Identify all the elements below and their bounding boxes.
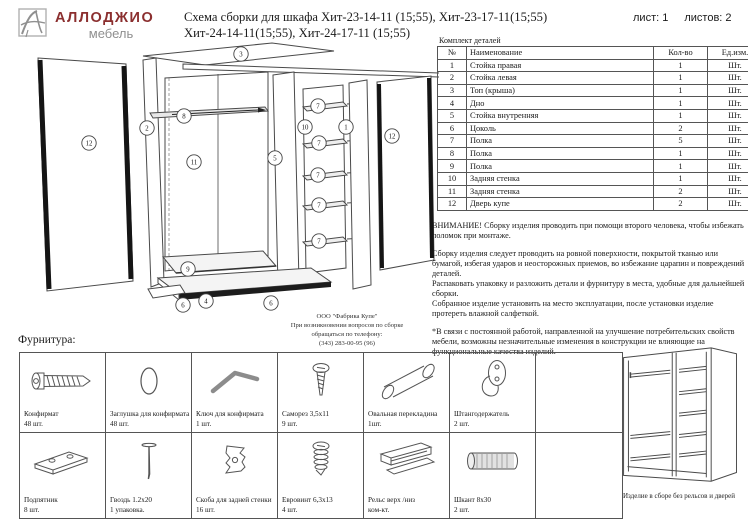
svg-text:7: 7	[317, 140, 321, 147]
euro-screw-icon	[278, 436, 363, 486]
svg-text:6: 6	[269, 300, 273, 307]
door-right	[377, 76, 434, 270]
part-callout: 8	[177, 109, 191, 123]
contact-line: При возникновении вопросов по сборке	[282, 322, 412, 331]
note-block: Сборку изделия следует проводить на ровн…	[432, 249, 746, 319]
table-cell: 1	[654, 160, 708, 173]
svg-text:8: 8	[182, 113, 186, 120]
svg-text:5: 5	[273, 155, 277, 162]
contact-line: обращаться по телефону:	[282, 331, 412, 340]
table-row: 8Полка1Шт.	[438, 147, 748, 160]
part-callout: 3	[234, 47, 248, 61]
part-callout: 2	[140, 121, 154, 135]
parts-table-caption: Комплект деталей	[439, 36, 745, 45]
table-cell: 1	[654, 72, 708, 85]
left-post	[143, 58, 164, 287]
contact-line: (343) 283-00-95 (96)	[282, 340, 412, 349]
table-row: 1Стойка правая1Шт.	[438, 59, 748, 72]
brand-sub: мебель	[55, 26, 167, 41]
rail-icon	[364, 436, 449, 486]
table-cell: 4	[438, 97, 467, 110]
note-paragraph: Сборку изделия следует проводить на ровн…	[432, 249, 746, 279]
hex-key-icon	[192, 356, 277, 406]
table-cell: Задняя стенка	[467, 185, 654, 198]
table-cell: Стойка левая	[467, 72, 654, 85]
note-paragraph: Распаковать упаковку и разложить детали …	[432, 279, 746, 299]
svg-text:3: 3	[239, 51, 243, 58]
note-block: ВНИМАНИЕ! Сборку изделия проводить при п…	[432, 221, 746, 241]
assembled-unit-caption: Изделие в сборе без рельсов и дверей	[610, 492, 748, 500]
table-cell: 12	[438, 198, 467, 211]
hardware-cell: Скоба для задней стенки16 шт.	[192, 433, 278, 519]
table-cell: 2	[654, 185, 708, 198]
hardware-name: Ключ для конфирмата	[196, 410, 276, 419]
hardware-cell: Овальная перекладина1шт.	[364, 353, 450, 433]
dowel-icon	[450, 436, 535, 486]
svg-text:6: 6	[181, 302, 185, 309]
table-cell: Шт.	[708, 198, 748, 211]
hardware-qty: 16 шт.	[196, 506, 276, 515]
table-cell: Задняя стенка	[467, 172, 654, 185]
hardware-empty-cell	[536, 433, 623, 519]
hardware-qty: 9 шт.	[282, 420, 362, 429]
table-cell: 1	[654, 109, 708, 122]
hardware-cell: Ключ для конфирмата1 шт.	[192, 353, 278, 433]
table-cell: 5	[438, 109, 467, 122]
manufacturer-contact: ООО "Фабрика Купе"При возникновении вопр…	[282, 313, 412, 349]
table-cell: 1	[654, 84, 708, 97]
hardware-name: Скоба для задней стенки	[196, 496, 276, 505]
hardware-table: Конфирмат48 шт. Заглушка для конфирмата4…	[19, 352, 623, 519]
table-cell: 10	[438, 172, 467, 185]
table-cell: 1	[654, 59, 708, 72]
rod-holder-icon	[450, 356, 535, 406]
hardware-section-label: Фурнитура:	[18, 334, 76, 346]
hardware-qty: 2 шт.	[454, 420, 534, 429]
hardware-qty: 8 шт.	[24, 506, 104, 515]
hardware-name: Рельс верх /низ	[368, 496, 448, 505]
svg-text:4: 4	[204, 298, 208, 305]
table-cell: 2	[654, 198, 708, 211]
svg-text:11: 11	[191, 159, 198, 166]
assembly-sheet: АЛЛОДЖИО мебель Схема сборки для шкафа Х…	[0, 0, 748, 527]
confirmat-icon	[20, 356, 105, 406]
table-cell: Шт.	[708, 185, 748, 198]
svg-text:7: 7	[316, 103, 320, 110]
brand: АЛЛОДЖИО мебель	[55, 10, 167, 41]
table-row: 4Дно1Шт.	[438, 97, 748, 110]
svg-text:10: 10	[302, 124, 309, 131]
table-cell: Шт.	[708, 72, 748, 85]
table-cell: Шт.	[708, 59, 748, 72]
hardware-cell: Гвоздь 1.2х201 упаковка.	[106, 433, 192, 519]
table-cell: Шт.	[708, 122, 748, 135]
table-cell: 6	[438, 122, 467, 135]
part-callout: 6	[264, 296, 278, 310]
table-cell: 1	[654, 172, 708, 185]
part-callout: 11	[187, 155, 201, 169]
part-callout: 9	[181, 262, 195, 276]
table-cell: 2	[438, 72, 467, 85]
svg-text:1: 1	[344, 124, 347, 131]
hardware-name: Гвоздь 1.2х20	[110, 496, 190, 505]
exploded-diagram: 3821211510777771129466	[22, 42, 439, 345]
col-qty: Кол-во	[654, 47, 708, 60]
table-cell: 9	[438, 160, 467, 173]
part-callout: 1	[339, 120, 353, 134]
svg-text:7: 7	[316, 172, 320, 179]
brand-name: АЛЛОДЖИО	[55, 10, 167, 26]
door-left	[38, 58, 133, 291]
table-cell: Полка	[467, 160, 654, 173]
hardware-qty: 2 шт.	[454, 506, 534, 515]
back-panel-large	[165, 72, 268, 271]
logo-mark-icon	[18, 8, 48, 38]
assembled-unit-drawing	[616, 344, 746, 490]
table-cell: Дно	[467, 97, 654, 110]
table-cell: 1	[438, 59, 467, 72]
part-callout: 7	[311, 168, 325, 182]
part-callout: 12	[82, 136, 96, 150]
hardware-name: Штангодержатель	[454, 410, 534, 419]
note-paragraph: ВНИМАНИЕ! Сборку изделия проводить при п…	[432, 221, 746, 241]
table-cell: Полка	[467, 135, 654, 148]
right-post	[349, 80, 371, 289]
table-cell: Шт.	[708, 109, 748, 122]
hardware-qty: 1шт.	[368, 420, 448, 429]
table-cell: Шт.	[708, 147, 748, 160]
hardware-name: Подпятник	[24, 496, 104, 505]
table-row: 11Задняя стенка2Шт.	[438, 185, 748, 198]
part-callout: 7	[311, 99, 325, 113]
hardware-qty: 48 шт.	[110, 420, 190, 429]
table-row: 6Цоколь2Шт.	[438, 122, 748, 135]
table-cell: 3	[438, 84, 467, 97]
hardware-qty: 48 шт.	[24, 420, 104, 429]
table-cell: 1	[654, 97, 708, 110]
sheet-number: лист: 1	[633, 12, 668, 24]
parts-table: № Наименование Кол-во Ед.изм. 1Стойка пр…	[437, 46, 748, 211]
sheet-info: лист: 1листов: 2	[633, 12, 748, 24]
hardware-qty: 4 шт.	[282, 506, 362, 515]
hardware-qty: 1 упаковка.	[110, 506, 190, 515]
hardware-name: Евровинт 6,3х13	[282, 496, 362, 505]
svg-text:12: 12	[86, 140, 93, 147]
parts-list: Комплект деталей № Наименование Кол-во Е…	[437, 36, 745, 211]
part-callout: 6	[176, 298, 190, 312]
table-cell: Топ (крыша)	[467, 84, 654, 97]
contact-line: ООО "Фабрика Купе"	[282, 313, 412, 322]
table-cell: Шт.	[708, 172, 748, 185]
table-cell: 11	[438, 185, 467, 198]
table-cell: 7	[438, 135, 467, 148]
table-cell: Стойка внутренняя	[467, 109, 654, 122]
table-cell: Полка	[467, 147, 654, 160]
part-callout: 7	[312, 234, 326, 248]
table-cell: Стойка правая	[467, 59, 654, 72]
table-cell: Шт.	[708, 135, 748, 148]
table-cell: 1	[654, 147, 708, 160]
table-row: 10Задняя стенка1Шт.	[438, 172, 748, 185]
hardware-cell: Заглушка для конфирмата48 шт.	[106, 353, 192, 433]
table-cell: 8	[438, 147, 467, 160]
table-cell: 5	[654, 135, 708, 148]
hardware-qty: 1 шт.	[196, 420, 276, 429]
oval-rod-icon	[364, 356, 449, 406]
table-row: 2Стойка левая1Шт.	[438, 72, 748, 85]
inner-post	[273, 72, 299, 286]
cap-icon	[106, 356, 191, 406]
part-callout: 7	[312, 198, 326, 212]
svg-text:12: 12	[389, 133, 396, 140]
svg-text:9: 9	[186, 266, 190, 273]
bracket-icon	[192, 436, 277, 486]
hardware-empty-cell	[536, 353, 623, 433]
title-line-1: Схема сборки для шкафа Хит-23-14-11 (15;…	[184, 9, 584, 25]
screw-icon	[278, 356, 363, 406]
table-cell: Шт.	[708, 97, 748, 110]
table-cell: Шт.	[708, 84, 748, 97]
part-callout: 4	[199, 294, 213, 308]
table-row: 12Дверь купе2Шт.	[438, 198, 748, 211]
col-unit: Ед.изм.	[708, 47, 748, 60]
foot-pad-icon	[20, 436, 105, 486]
col-name: Наименование	[467, 47, 654, 60]
parts-table-header: № Наименование Кол-во Ед.изм.	[438, 47, 748, 60]
part-callout: 5	[268, 151, 282, 165]
svg-text:2: 2	[145, 125, 149, 132]
hardware-name: Заглушка для конфирмата	[110, 410, 190, 419]
part-callout: 10	[298, 120, 312, 134]
table-row: 3Топ (крыша)1Шт.	[438, 84, 748, 97]
part-callout: 7	[312, 136, 326, 150]
sheet-count: листов: 2	[684, 12, 731, 24]
table-row: 9Полка1Шт.	[438, 160, 748, 173]
hardware-cell: Конфирмат48 шт.	[20, 353, 106, 433]
hardware-cell: Шкант 8х302 шт.	[450, 433, 536, 519]
table-cell: 2	[654, 122, 708, 135]
hardware-cell: Саморез 3,5х119 шт.	[278, 353, 364, 433]
hardware-cell: Рельс верх /низком-кт.	[364, 433, 450, 519]
hardware-name: Овальная перекладина	[368, 410, 448, 419]
part-callout: 12	[385, 129, 399, 143]
nail-icon	[106, 436, 191, 486]
svg-text:7: 7	[317, 238, 321, 245]
svg-text:7: 7	[317, 202, 321, 209]
table-cell: Шт.	[708, 160, 748, 173]
table-cell: Дверь купе	[467, 198, 654, 211]
hardware-name: Саморез 3,5х11	[282, 410, 362, 419]
hardware-cell: Евровинт 6,3х134 шт.	[278, 433, 364, 519]
hardware-cell: Штангодержатель2 шт.	[450, 353, 536, 433]
hardware-qty: ком-кт.	[368, 506, 448, 515]
hardware-name: Шкант 8х30	[454, 496, 534, 505]
hardware-cell: Подпятник8 шт.	[20, 433, 106, 519]
table-cell: Цоколь	[467, 122, 654, 135]
table-row: 5Стойка внутренняя1Шт.	[438, 109, 748, 122]
hardware-name: Конфирмат	[24, 410, 104, 419]
note-paragraph: Собранное изделие установить на место эк…	[432, 299, 746, 319]
table-row: 7Полка5Шт.	[438, 135, 748, 148]
col-number: №	[438, 47, 467, 60]
